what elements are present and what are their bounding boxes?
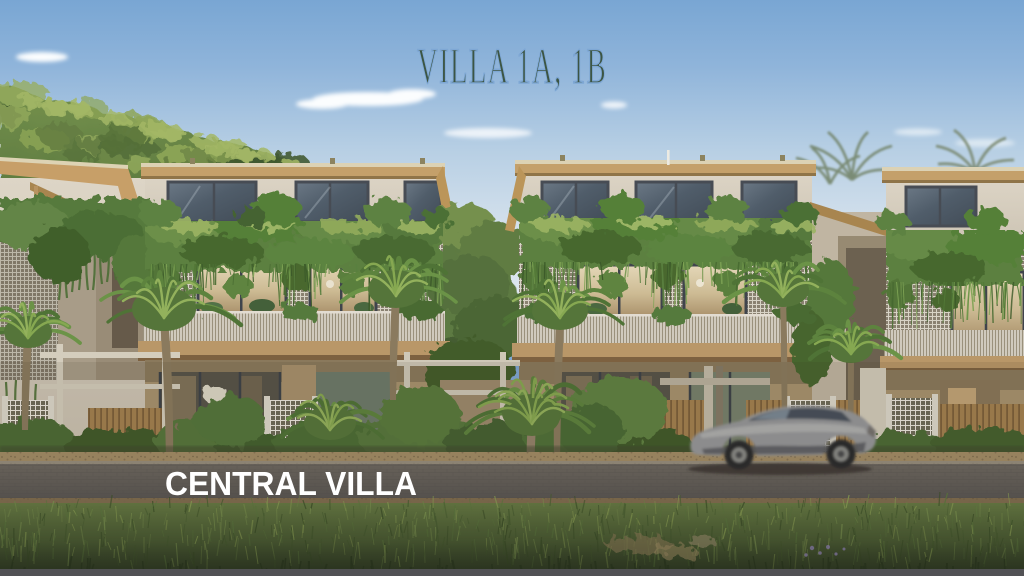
svg-text:VILLA 1A, 1B: VILLA 1A, 1B [417,39,607,95]
svg-text:CENTRAL VILLA: CENTRAL VILLA [165,465,417,502]
